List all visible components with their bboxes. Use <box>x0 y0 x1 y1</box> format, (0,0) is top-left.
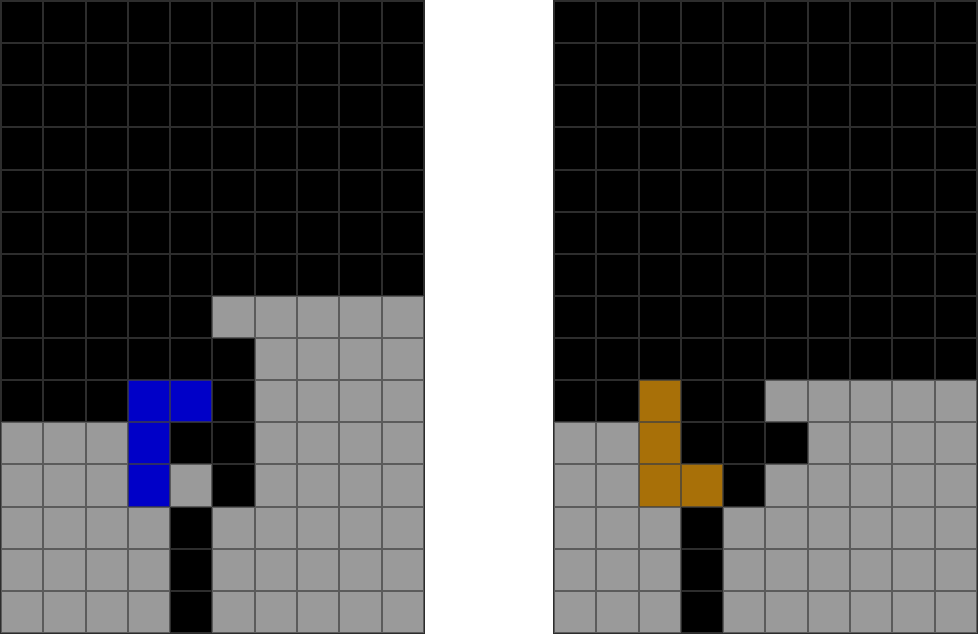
grid-cell <box>212 85 254 127</box>
grid-cell <box>297 464 339 506</box>
grid-cell <box>765 1 807 43</box>
grid-cell <box>1 170 43 212</box>
grid-cell <box>892 464 934 506</box>
grid-cell <box>297 170 339 212</box>
grid-cell <box>297 1 339 43</box>
grid-cell <box>765 170 807 212</box>
grid-cell <box>1 296 43 338</box>
grid-cell <box>212 170 254 212</box>
grid-cell <box>850 549 892 591</box>
grid-cell <box>596 127 638 169</box>
grid-cell <box>255 212 297 254</box>
grid-cell <box>339 127 381 169</box>
grid-cell <box>892 380 934 422</box>
grid-cell <box>43 338 85 380</box>
grid-cell <box>212 507 254 549</box>
grid-cell <box>639 464 681 506</box>
grid-cell <box>1 507 43 549</box>
grid-cell <box>170 254 212 296</box>
grid-cell <box>935 127 977 169</box>
grid-cell <box>681 591 723 633</box>
grid-cell <box>128 549 170 591</box>
grid-cell <box>639 85 681 127</box>
grid-cell <box>339 43 381 85</box>
grid-cell <box>382 212 424 254</box>
grid-cell <box>596 170 638 212</box>
grid-cell <box>297 338 339 380</box>
grid-cell <box>808 170 850 212</box>
grid-cell <box>339 212 381 254</box>
grid-cell <box>382 464 424 506</box>
grid-cell <box>935 254 977 296</box>
grid-cell <box>850 507 892 549</box>
grid-cell <box>681 464 723 506</box>
grid-cell <box>86 127 128 169</box>
grid-cell <box>255 127 297 169</box>
grid-cell <box>86 170 128 212</box>
grid-cell <box>382 507 424 549</box>
grid-cell <box>297 212 339 254</box>
grid-cell <box>808 422 850 464</box>
grid-cell <box>892 549 934 591</box>
grid-cell <box>639 127 681 169</box>
grid-cell <box>128 85 170 127</box>
grid-cell <box>43 254 85 296</box>
grid-cell <box>596 85 638 127</box>
grid-cell <box>723 127 765 169</box>
grid-cell <box>382 127 424 169</box>
grid-cell <box>850 296 892 338</box>
grid-cell <box>128 591 170 633</box>
grid-cell <box>339 464 381 506</box>
grid-cell <box>86 43 128 85</box>
grid-cell <box>339 170 381 212</box>
grid-cell <box>681 127 723 169</box>
grid-cell <box>765 338 807 380</box>
grid-cell <box>935 464 977 506</box>
grid-cell <box>170 212 212 254</box>
grid-cell <box>808 296 850 338</box>
grid-cell <box>1 43 43 85</box>
grid-cell <box>850 254 892 296</box>
grid-cell <box>850 380 892 422</box>
grid-cell <box>639 507 681 549</box>
grid-cell <box>808 507 850 549</box>
grid-cell <box>212 254 254 296</box>
grid-cell <box>86 85 128 127</box>
grid-cell <box>1 212 43 254</box>
grid-cell <box>554 85 596 127</box>
grid-cell <box>128 338 170 380</box>
grid-cell <box>170 507 212 549</box>
grid-cell <box>255 591 297 633</box>
grid-cell <box>892 1 934 43</box>
grid-cell <box>212 422 254 464</box>
grid-cell <box>170 1 212 43</box>
grid-cell <box>382 170 424 212</box>
grid-cell <box>170 591 212 633</box>
grid-cell <box>554 127 596 169</box>
grid-cell <box>43 464 85 506</box>
grid-cell <box>850 338 892 380</box>
puzzle-pair <box>0 0 978 634</box>
grid-cell <box>382 549 424 591</box>
grid-cell <box>850 85 892 127</box>
grid-cell <box>170 549 212 591</box>
grid-cell <box>43 422 85 464</box>
grid-cell <box>935 85 977 127</box>
grid-cell <box>554 507 596 549</box>
grid-cell <box>255 507 297 549</box>
grid-cell <box>765 422 807 464</box>
grid-cell <box>639 338 681 380</box>
grid-cell <box>596 549 638 591</box>
grid-cell <box>639 170 681 212</box>
grid-cell <box>723 212 765 254</box>
grid-cell <box>935 549 977 591</box>
grid-cell <box>170 464 212 506</box>
grid-cell <box>639 254 681 296</box>
grid-cell <box>128 1 170 43</box>
grid-cell <box>86 591 128 633</box>
grid-cell <box>297 380 339 422</box>
grid-cell <box>339 380 381 422</box>
grid-cell <box>339 85 381 127</box>
grid-cell <box>765 85 807 127</box>
grid-cell <box>935 296 977 338</box>
grid-cell <box>596 422 638 464</box>
grid-cell <box>554 464 596 506</box>
grid-cell <box>128 422 170 464</box>
grid-cell <box>1 422 43 464</box>
grid-cell <box>596 591 638 633</box>
grid-cell <box>554 338 596 380</box>
grid-cell <box>1 1 43 43</box>
grid-cell <box>639 591 681 633</box>
grid-cell <box>892 296 934 338</box>
grid-cell <box>681 85 723 127</box>
grid-cell <box>297 254 339 296</box>
grid-cell <box>382 85 424 127</box>
grid-cell <box>723 43 765 85</box>
grid-cell <box>382 43 424 85</box>
grid-cell <box>212 1 254 43</box>
grid-cell <box>1 254 43 296</box>
grid-cell <box>382 296 424 338</box>
grid-cell <box>850 127 892 169</box>
grid-cell <box>382 1 424 43</box>
grid-cell <box>297 85 339 127</box>
grid-cell <box>723 254 765 296</box>
grid-cell <box>892 43 934 85</box>
grid-cell <box>128 212 170 254</box>
grid-cell <box>554 380 596 422</box>
grid-cell <box>639 549 681 591</box>
grid-cell <box>554 296 596 338</box>
grid-cell <box>43 507 85 549</box>
grid-cell <box>681 338 723 380</box>
grid-cell <box>681 507 723 549</box>
grid-cell <box>170 170 212 212</box>
grid-cell <box>935 507 977 549</box>
grid-cell <box>596 296 638 338</box>
grid-cell <box>382 422 424 464</box>
grid-cell <box>639 212 681 254</box>
grid-cell <box>170 296 212 338</box>
grid-cell <box>128 380 170 422</box>
grid-cell <box>596 507 638 549</box>
grid-cell <box>723 549 765 591</box>
grid-cell <box>723 507 765 549</box>
grid-cell <box>86 338 128 380</box>
grid-cell <box>850 212 892 254</box>
grid-cell <box>339 1 381 43</box>
grid-cell <box>808 212 850 254</box>
grid-cell <box>765 591 807 633</box>
grid-cell <box>128 507 170 549</box>
grid-cell <box>596 464 638 506</box>
grid-cell <box>255 296 297 338</box>
grid-cell <box>255 464 297 506</box>
grid-cell <box>765 507 807 549</box>
grid-cell <box>1 591 43 633</box>
grid-cell <box>86 296 128 338</box>
right-grid <box>553 0 978 634</box>
grid-cell <box>128 296 170 338</box>
grid-cell <box>596 212 638 254</box>
grid-cell <box>212 43 254 85</box>
grid-cell <box>43 85 85 127</box>
grid-cell <box>892 85 934 127</box>
grid-cell <box>681 170 723 212</box>
grid-cell <box>382 591 424 633</box>
grid-cell <box>808 591 850 633</box>
grid-cell <box>808 85 850 127</box>
grid-cell <box>554 170 596 212</box>
grid-cell <box>765 296 807 338</box>
grid-cell <box>297 127 339 169</box>
grid-cell <box>212 296 254 338</box>
grid-cell <box>170 43 212 85</box>
grid-cell <box>681 549 723 591</box>
grid-cell <box>554 422 596 464</box>
grid-cell <box>808 380 850 422</box>
grid-cell <box>639 296 681 338</box>
grid-cell <box>723 1 765 43</box>
grid-cell <box>170 85 212 127</box>
grid-cell <box>850 170 892 212</box>
grid-cell <box>892 591 934 633</box>
grid-cell <box>723 85 765 127</box>
grid-cell <box>170 338 212 380</box>
grid-cell <box>935 212 977 254</box>
grid-cell <box>765 464 807 506</box>
grid-cell <box>255 85 297 127</box>
grid-cell <box>554 212 596 254</box>
grid-cell <box>255 43 297 85</box>
grid-cell <box>935 422 977 464</box>
grid-cell <box>681 422 723 464</box>
grid-cell <box>43 591 85 633</box>
grid-cell <box>808 338 850 380</box>
grid-cell <box>639 422 681 464</box>
grid-cell <box>43 170 85 212</box>
grid-cell <box>86 1 128 43</box>
grid-cell <box>255 422 297 464</box>
grid-cell <box>639 1 681 43</box>
grid-cell <box>339 422 381 464</box>
grid-cell <box>255 1 297 43</box>
grid-cell <box>1 464 43 506</box>
grid-cell <box>681 1 723 43</box>
grid-cell <box>255 338 297 380</box>
grid-cell <box>382 254 424 296</box>
grid-cell <box>681 212 723 254</box>
grid-cell <box>765 127 807 169</box>
grid-cell <box>808 549 850 591</box>
grid-cell <box>212 338 254 380</box>
grid-cell <box>765 254 807 296</box>
grid-cell <box>554 1 596 43</box>
grid-cell <box>892 507 934 549</box>
grid-cell <box>86 380 128 422</box>
grid-cell <box>43 380 85 422</box>
grid-cell <box>339 549 381 591</box>
grid-cell <box>850 43 892 85</box>
grid-cell <box>765 212 807 254</box>
grid-cell <box>212 212 254 254</box>
grid-cell <box>850 422 892 464</box>
grid-cell <box>554 591 596 633</box>
grid-cell <box>723 296 765 338</box>
grid-cell <box>255 170 297 212</box>
grid-cell <box>892 127 934 169</box>
grid-cell <box>554 254 596 296</box>
grid-cell <box>892 170 934 212</box>
grid-cell <box>935 591 977 633</box>
grid-cell <box>596 43 638 85</box>
grid-cell <box>339 591 381 633</box>
grid-cell <box>723 464 765 506</box>
grid-cell <box>850 591 892 633</box>
grid-cell <box>255 549 297 591</box>
grid-cell <box>212 380 254 422</box>
grid-cell <box>808 254 850 296</box>
grid-cell <box>297 43 339 85</box>
grid-cell <box>554 549 596 591</box>
grid-cell <box>765 549 807 591</box>
grid-cell <box>681 296 723 338</box>
grid-cell <box>339 338 381 380</box>
grid-cell <box>1 85 43 127</box>
grid-cell <box>1 380 43 422</box>
grid-cell <box>935 338 977 380</box>
grid-cell <box>892 422 934 464</box>
grid-cell <box>935 43 977 85</box>
grid-cell <box>808 127 850 169</box>
grid-cell <box>808 464 850 506</box>
grid-cell <box>723 170 765 212</box>
grid-cell <box>681 254 723 296</box>
grid-cell <box>297 296 339 338</box>
grid-cell <box>892 212 934 254</box>
grid-cell <box>850 1 892 43</box>
grid-cell <box>86 549 128 591</box>
grid-cell <box>596 1 638 43</box>
grid-cell <box>297 507 339 549</box>
grid-cell <box>935 1 977 43</box>
grid-cell <box>596 254 638 296</box>
grid-cell <box>723 380 765 422</box>
grid-cell <box>43 127 85 169</box>
grid-cell <box>554 43 596 85</box>
grid-cell <box>596 338 638 380</box>
grid-cell <box>723 422 765 464</box>
grid-cell <box>339 507 381 549</box>
grid-cell <box>681 43 723 85</box>
grid-cell <box>212 464 254 506</box>
grid-cell <box>43 43 85 85</box>
grid-cell <box>43 549 85 591</box>
grid-cell <box>212 591 254 633</box>
grid-cell <box>297 549 339 591</box>
grid-cell <box>128 43 170 85</box>
grid-cell <box>765 43 807 85</box>
grid-cell <box>1 338 43 380</box>
grid-cell <box>128 170 170 212</box>
grid-cell <box>723 591 765 633</box>
grid-cell <box>128 254 170 296</box>
grid-cell <box>339 296 381 338</box>
grid-cell <box>43 212 85 254</box>
grid-cell <box>935 170 977 212</box>
grid-cell <box>639 43 681 85</box>
grid-cell <box>255 254 297 296</box>
grid-cell <box>723 338 765 380</box>
left-grid <box>0 0 425 634</box>
grid-cell <box>1 549 43 591</box>
grid-cell <box>170 127 212 169</box>
grid-cell <box>935 380 977 422</box>
grid-cell <box>86 464 128 506</box>
grid-cell <box>297 422 339 464</box>
grid-cell <box>639 380 681 422</box>
grid-cell <box>892 254 934 296</box>
grid-cell <box>765 380 807 422</box>
grid-cell <box>382 338 424 380</box>
grid-cell <box>170 422 212 464</box>
grid-cell <box>86 254 128 296</box>
grid-cell <box>1 127 43 169</box>
grid-cell <box>43 1 85 43</box>
grid-cell <box>86 507 128 549</box>
grid-cell <box>892 338 934 380</box>
grid-cell <box>297 591 339 633</box>
grid-cell <box>255 380 297 422</box>
grid-cell <box>128 127 170 169</box>
grid-cell <box>808 43 850 85</box>
grid-cell <box>850 464 892 506</box>
grid-cell <box>808 1 850 43</box>
grid-cell <box>681 380 723 422</box>
grid-cell <box>86 422 128 464</box>
grid-cell <box>43 296 85 338</box>
grid-cell <box>212 549 254 591</box>
grid-cell <box>382 380 424 422</box>
grid-cell <box>170 380 212 422</box>
grid-cell <box>596 380 638 422</box>
grid-cell <box>128 464 170 506</box>
